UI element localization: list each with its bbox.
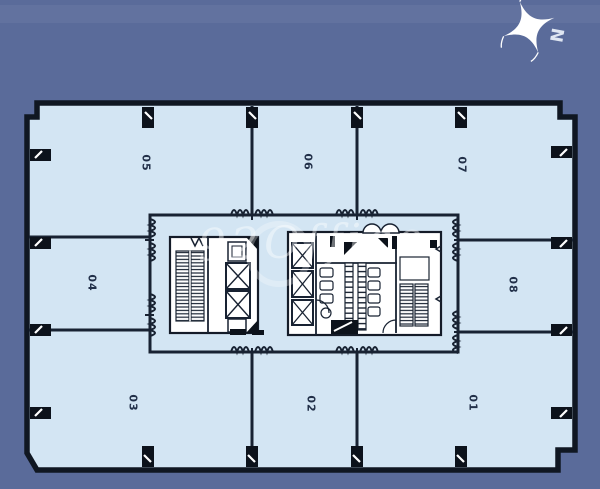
unit-label-04: 04 (86, 274, 99, 291)
unit-label-03: 03 (127, 394, 140, 411)
service-shaft (331, 320, 358, 334)
unit-label-08: 08 (507, 276, 520, 293)
unit-label-01: 01 (467, 394, 480, 411)
floor-plan-viewport: 05 06 07 04 08 03 02 01 92Office N (0, 0, 600, 489)
elevator-icon (226, 263, 250, 318)
stairs-icon (400, 257, 429, 326)
core-block-west (170, 237, 258, 333)
elevator-icon (292, 243, 313, 325)
floor-plan-drawing (0, 0, 600, 489)
stairs-icon (176, 251, 204, 321)
unit-label-07: 07 (456, 156, 469, 173)
unit-label-05: 05 (140, 154, 153, 171)
core-block-east (288, 224, 441, 335)
unit-label-06: 06 (302, 153, 315, 170)
unit-label-02: 02 (305, 395, 318, 412)
